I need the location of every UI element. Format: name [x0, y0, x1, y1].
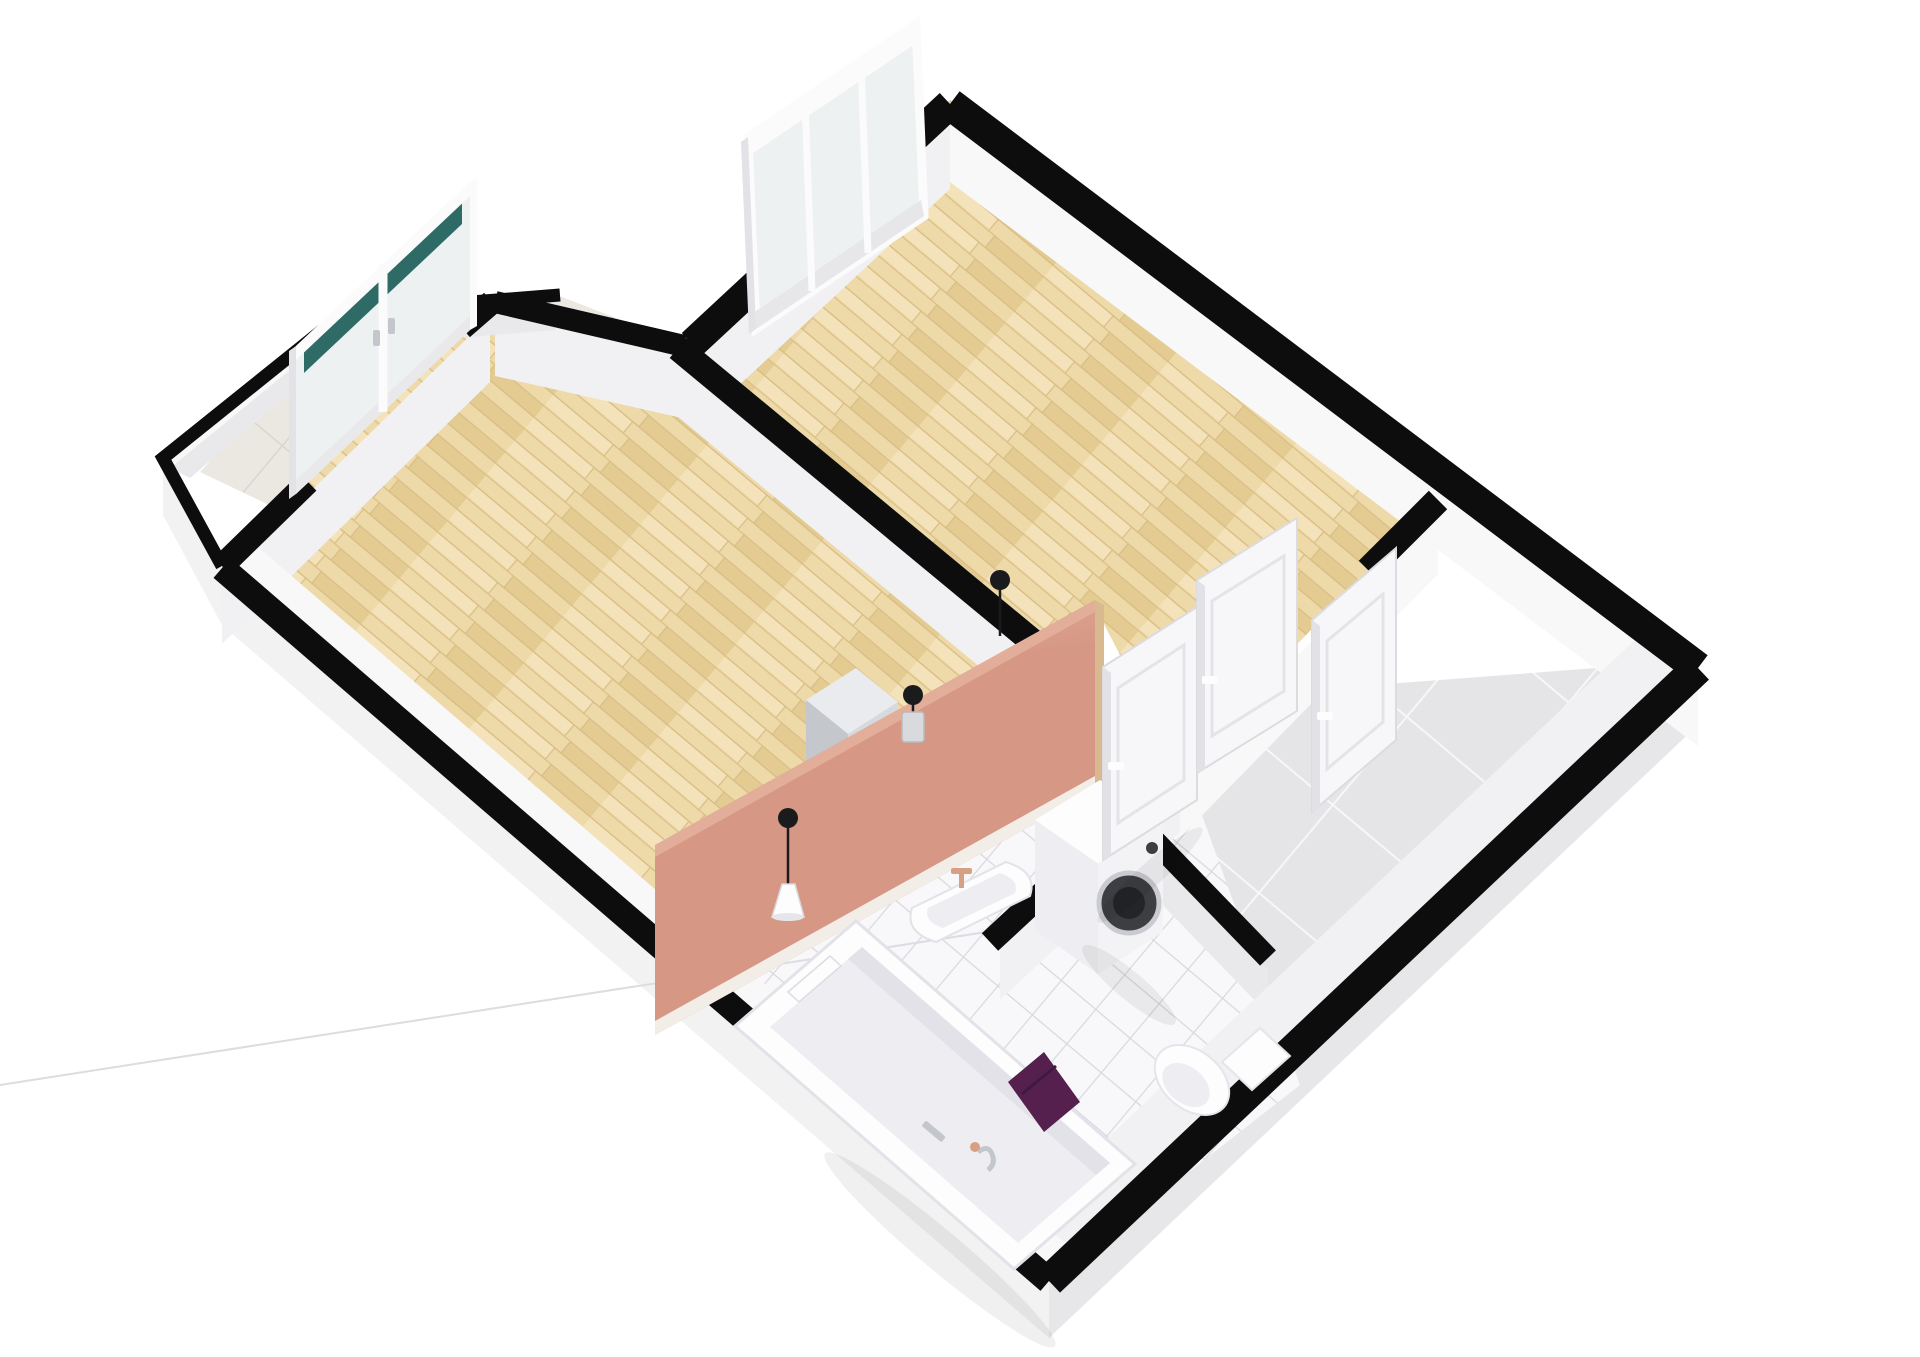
sink-faucet: [959, 872, 964, 888]
washer-knob: [1146, 842, 1158, 854]
french-door-handle: [388, 318, 395, 334]
lamp-ball-finial: [903, 685, 923, 705]
bath-spout-base: [970, 1142, 980, 1152]
lamp-cone-rim: [772, 913, 804, 921]
floorplan-3d-render: [0, 0, 1920, 1357]
lamp-cylinder-shade: [902, 712, 924, 742]
sink-faucet-handle: [951, 868, 972, 874]
floorplan-stage: [0, 0, 1920, 1357]
door-handle: [1108, 762, 1124, 770]
door-handle: [1317, 712, 1333, 720]
door-handle: [1202, 676, 1218, 684]
lamp-ball-finial: [778, 808, 798, 828]
french-door-left-jamb: [289, 346, 296, 499]
french-door-right-jamb: [470, 178, 477, 330]
french-door-handle: [373, 330, 380, 346]
lamp-ball-finial: [990, 570, 1010, 590]
